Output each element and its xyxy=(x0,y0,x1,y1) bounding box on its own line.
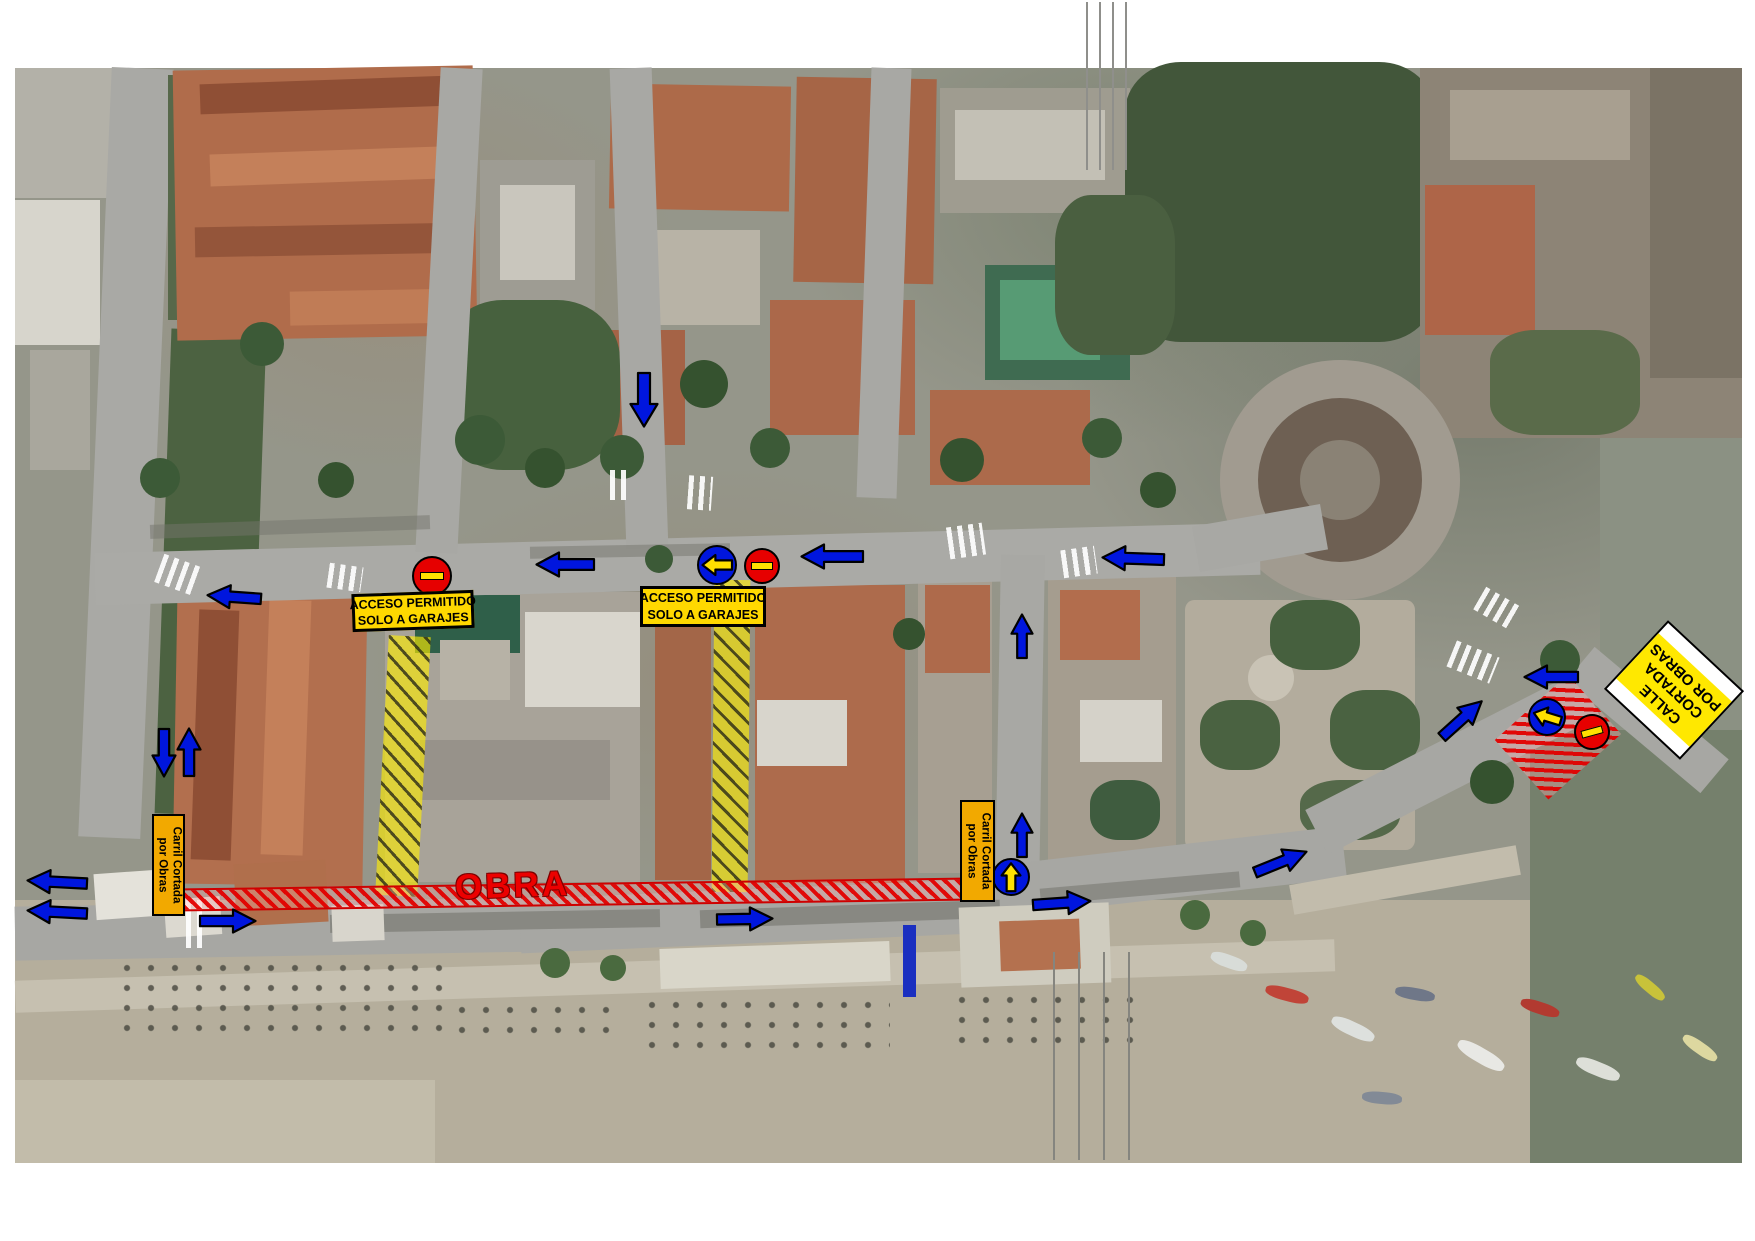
arrow-left-coastal-west-2 xyxy=(25,897,88,926)
sign-text-rotated: Carril Cortada por Obras xyxy=(963,801,992,901)
acceso-garajes-sign-west: ACCESO PERMITIDO SOLO A GARAJES xyxy=(351,590,474,632)
arrow-up-boulevard xyxy=(176,727,202,777)
arrow-up-cross-street-north xyxy=(1010,613,1034,659)
obra-label: OBRA xyxy=(454,864,570,908)
sign-text-line: por Obras xyxy=(963,801,977,901)
arrow-left-coastal-west-1 xyxy=(25,867,88,896)
arrow-up-right-to-roundabout xyxy=(1432,691,1491,748)
no-entry-bar xyxy=(751,562,773,570)
sign-text-line: Carril Cortada xyxy=(978,801,992,901)
no-entry-main-street-mid xyxy=(744,548,780,584)
arrow-left-main-street-2 xyxy=(800,543,864,570)
mandatory-up-cross-street-arrow xyxy=(1000,862,1022,892)
mandatory-left-roundabout-south-arrow xyxy=(1529,702,1564,732)
arrow-right-coastal-east xyxy=(1031,888,1093,918)
arrow-left-main-street-1 xyxy=(535,551,595,578)
arrow-right-coastal-mid xyxy=(716,905,774,932)
mandatory-up-cross-street xyxy=(992,858,1030,896)
sign-text-line: Carril Cortada xyxy=(169,815,183,915)
sign-text-line: por Obras xyxy=(154,815,168,915)
arrow-up-right-coastal xyxy=(1249,839,1313,885)
arrow-left-roundabout-exit xyxy=(1523,664,1579,690)
no-entry-bar xyxy=(1580,725,1603,738)
sign-text-line: SOLO A GARAJES xyxy=(648,607,759,623)
sign-text-rotated: Carril Cortada por Obras xyxy=(154,815,183,915)
arrow-left-main-street-west xyxy=(205,582,263,612)
mandatory-left-main-street-arrow xyxy=(701,554,733,577)
arrow-right-promenade-west xyxy=(199,908,257,934)
mandatory-left-main-street xyxy=(697,545,737,585)
arrow-up-cross-street-south xyxy=(1010,812,1034,858)
traffic-plan-page: ACCESO PERMITIDO SOLO A GARAJES ACCESO P… xyxy=(0,0,1755,1241)
closed-street-west-hatch xyxy=(375,635,431,897)
carril-cortado-sign-west: Carril Cortada por Obras xyxy=(152,814,185,916)
no-entry-bar xyxy=(420,572,444,581)
sign-text-line: ACCESO PERMITIDO xyxy=(640,590,766,606)
carril-cortado-sign-east: Carril Cortada por Obras xyxy=(960,800,995,902)
traffic-annotations xyxy=(0,0,1755,1241)
arrow-down-boulevard xyxy=(151,728,177,778)
mandatory-left-roundabout-south xyxy=(1528,698,1566,736)
obra-works-zone xyxy=(184,878,962,912)
acceso-garajes-sign-east: ACCESO PERMITIDO SOLO A GARAJES xyxy=(640,586,766,627)
arrow-down-top-street xyxy=(629,372,659,428)
sign-text-line: SOLO A GARAJES xyxy=(358,609,469,629)
arrow-left-main-street-3 xyxy=(1101,543,1166,572)
